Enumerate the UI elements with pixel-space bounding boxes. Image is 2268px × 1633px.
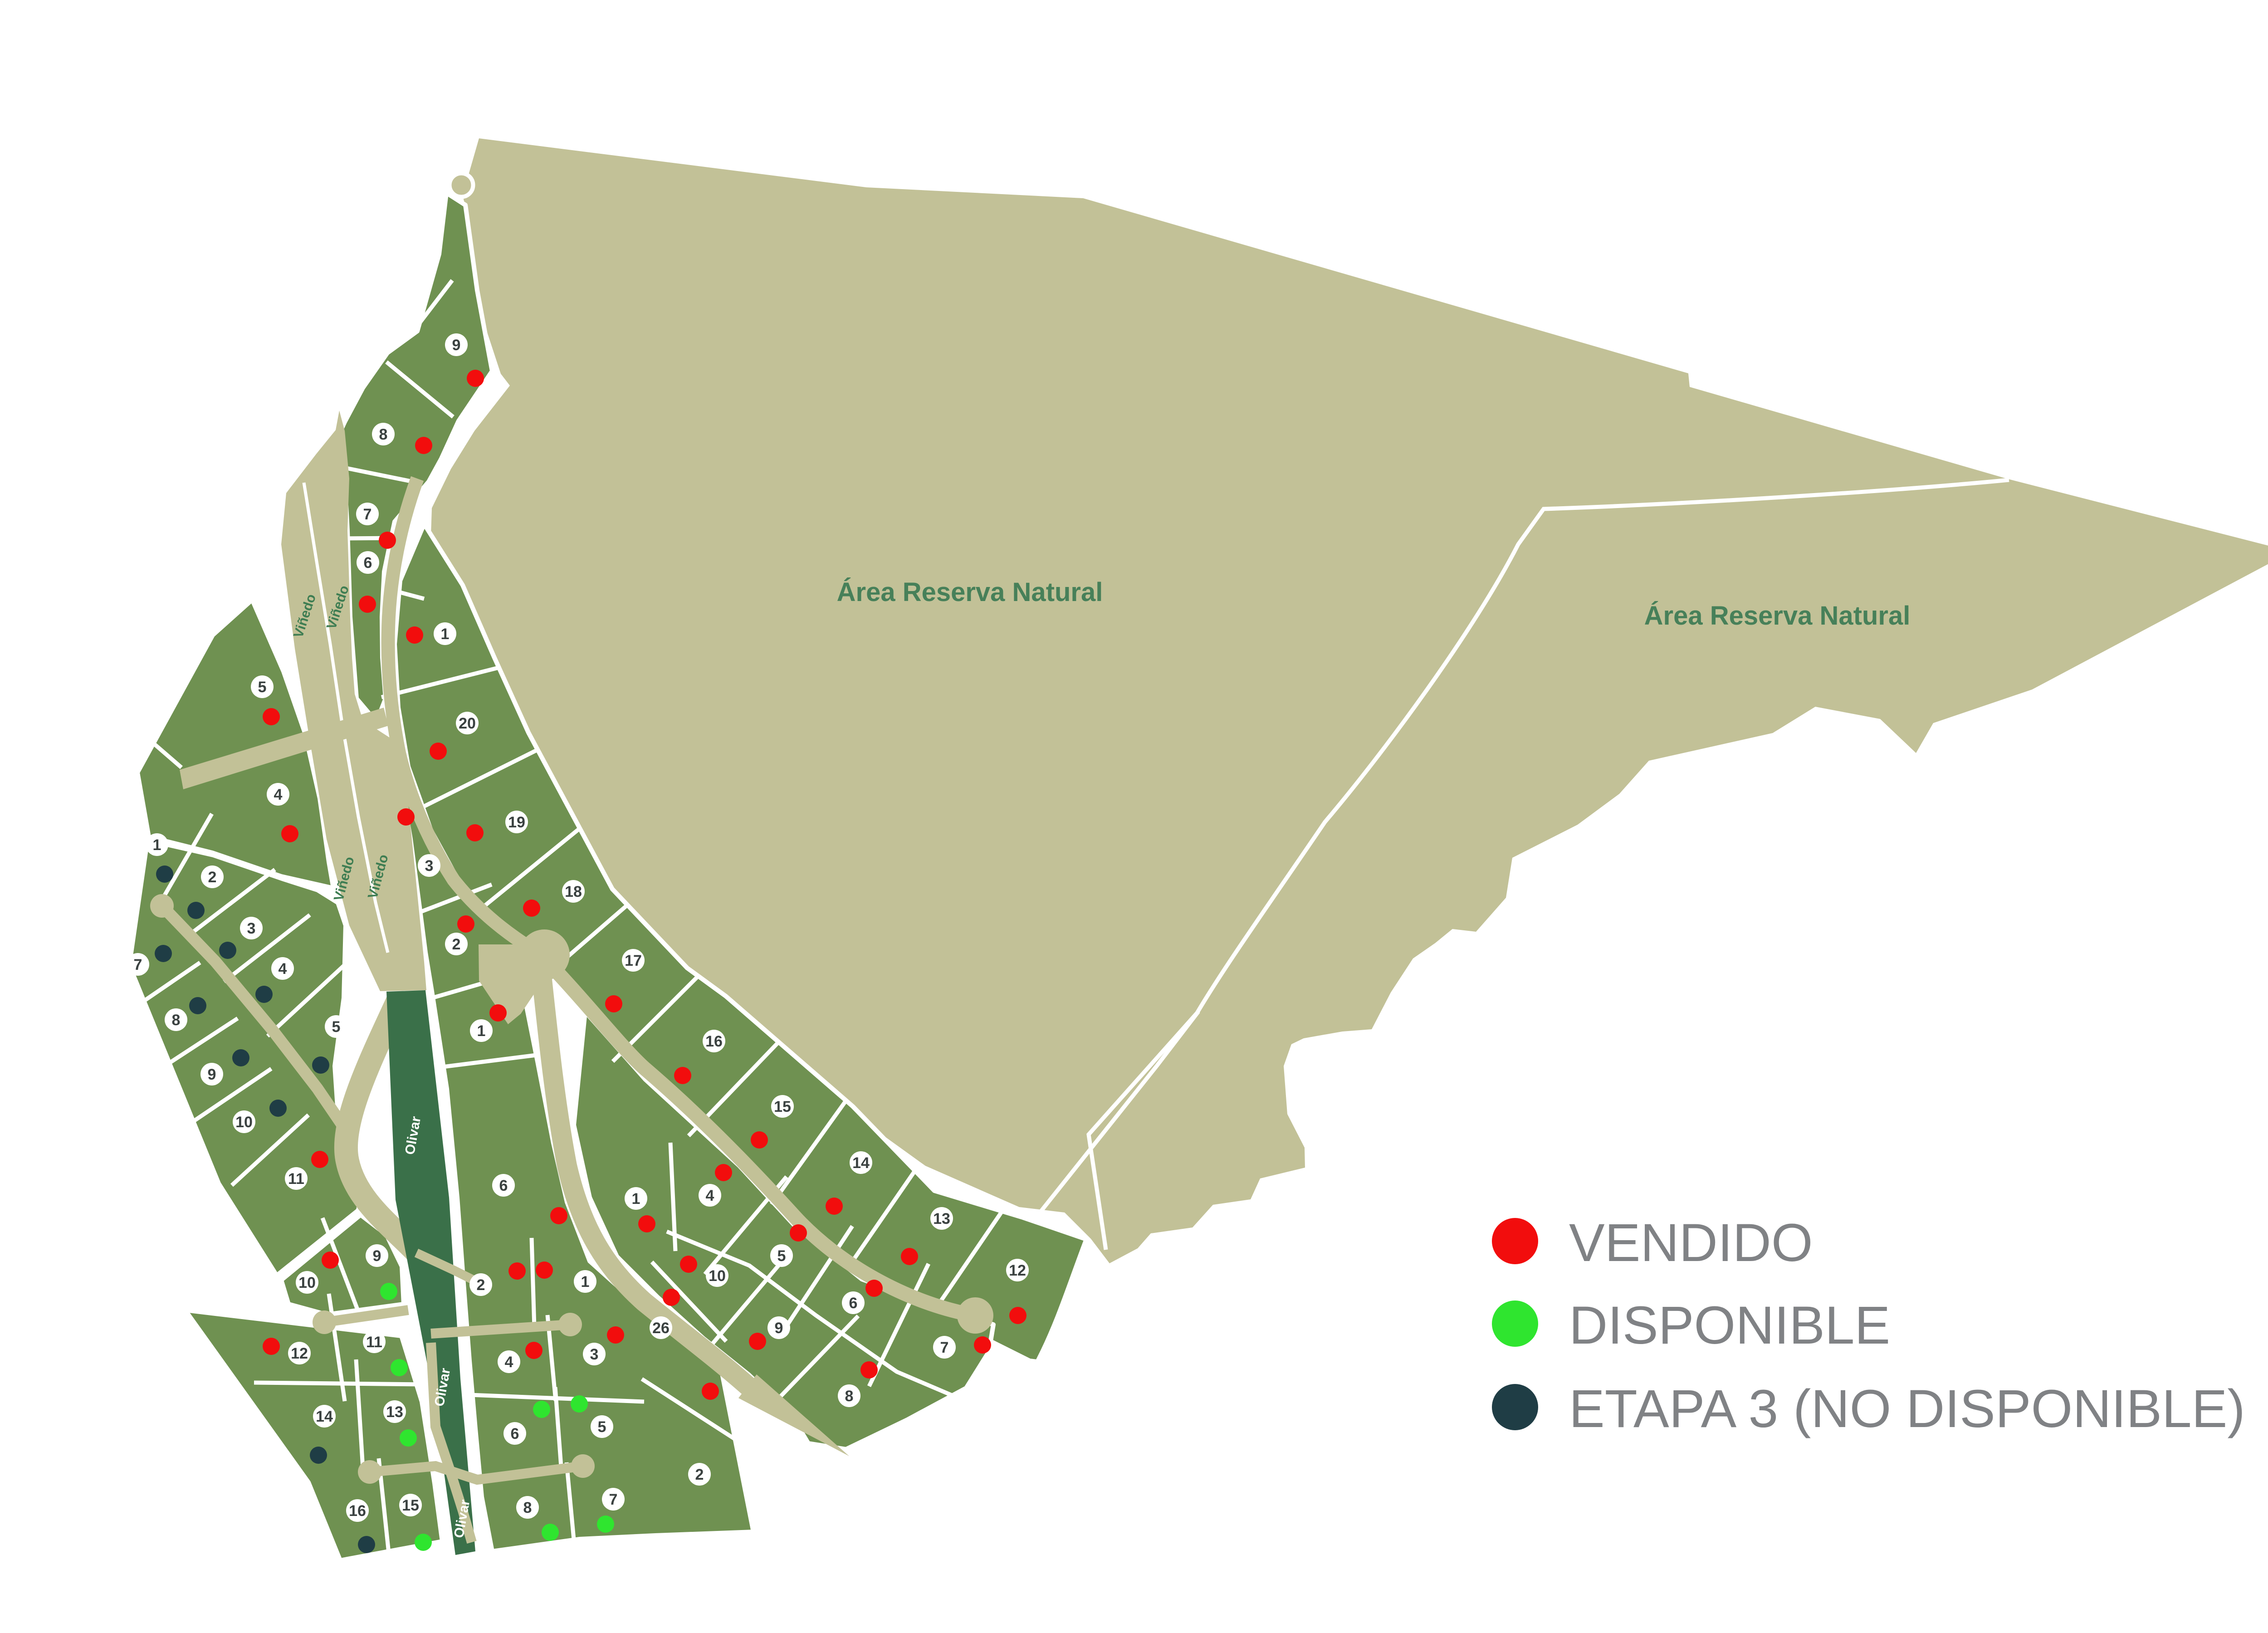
svg-text:4: 4: [706, 1187, 714, 1204]
svg-text:1: 1: [153, 836, 161, 854]
svg-text:14: 14: [316, 1408, 333, 1425]
svg-text:3: 3: [590, 1346, 599, 1363]
svg-text:4: 4: [505, 1354, 513, 1371]
svg-text:8: 8: [523, 1499, 532, 1516]
svg-text:5: 5: [598, 1418, 606, 1436]
svg-text:5: 5: [777, 1247, 786, 1265]
svg-text:16: 16: [705, 1033, 723, 1050]
svg-text:6: 6: [511, 1425, 519, 1442]
svg-text:26: 26: [652, 1320, 670, 1337]
svg-text:10: 10: [235, 1114, 253, 1131]
svg-text:9: 9: [775, 1320, 783, 1337]
svg-text:12: 12: [1009, 1262, 1026, 1279]
svg-text:5: 5: [332, 1018, 341, 1036]
svg-text:4: 4: [279, 960, 287, 978]
svg-text:8: 8: [379, 426, 388, 443]
svg-text:9: 9: [373, 1247, 381, 1265]
svg-text:Área Reserva Natural: Área Reserva Natural: [837, 577, 1103, 607]
svg-text:ETAPA 3 (NO DISPONIBLE): ETAPA 3 (NO DISPONIBLE): [1569, 1379, 2245, 1439]
svg-text:16: 16: [349, 1502, 366, 1520]
svg-text:8: 8: [845, 1388, 854, 1405]
svg-text:6: 6: [364, 554, 372, 572]
svg-text:7: 7: [134, 956, 142, 973]
svg-text:2: 2: [477, 1276, 485, 1294]
svg-text:1: 1: [581, 1273, 590, 1291]
svg-text:15: 15: [402, 1497, 419, 1514]
svg-text:10: 10: [298, 1274, 316, 1291]
svg-text:6: 6: [849, 1295, 858, 1312]
svg-text:Área Reserva Natural: Área Reserva Natural: [1644, 601, 1911, 631]
svg-text:13: 13: [933, 1210, 950, 1227]
svg-text:7: 7: [363, 506, 372, 523]
svg-text:13: 13: [386, 1403, 403, 1421]
svg-text:5: 5: [258, 679, 267, 696]
svg-text:DISPONIBLE: DISPONIBLE: [1569, 1296, 1890, 1355]
svg-text:VENDIDO: VENDIDO: [1569, 1213, 1813, 1273]
svg-text:14: 14: [852, 1154, 870, 1172]
svg-text:7: 7: [609, 1491, 618, 1508]
svg-text:1: 1: [477, 1022, 486, 1040]
svg-text:12: 12: [291, 1345, 308, 1362]
svg-text:4: 4: [274, 786, 283, 803]
svg-text:1: 1: [632, 1190, 640, 1208]
svg-text:11: 11: [366, 1334, 382, 1351]
svg-text:19: 19: [508, 814, 525, 831]
svg-text:3: 3: [247, 920, 256, 937]
svg-text:1: 1: [441, 626, 450, 643]
svg-text:9: 9: [452, 337, 461, 354]
svg-text:9: 9: [208, 1066, 216, 1083]
svg-text:6: 6: [499, 1177, 508, 1194]
svg-text:2: 2: [452, 936, 461, 953]
svg-text:8: 8: [172, 1012, 181, 1029]
svg-text:15: 15: [774, 1098, 791, 1115]
svg-text:2: 2: [695, 1466, 704, 1483]
svg-text:17: 17: [625, 952, 642, 969]
svg-text:2: 2: [208, 869, 217, 886]
svg-text:7: 7: [940, 1339, 949, 1356]
svg-text:3: 3: [425, 857, 434, 875]
svg-text:11: 11: [288, 1170, 304, 1188]
svg-text:10: 10: [709, 1267, 726, 1285]
svg-text:20: 20: [459, 715, 476, 732]
svg-text:18: 18: [565, 883, 582, 900]
